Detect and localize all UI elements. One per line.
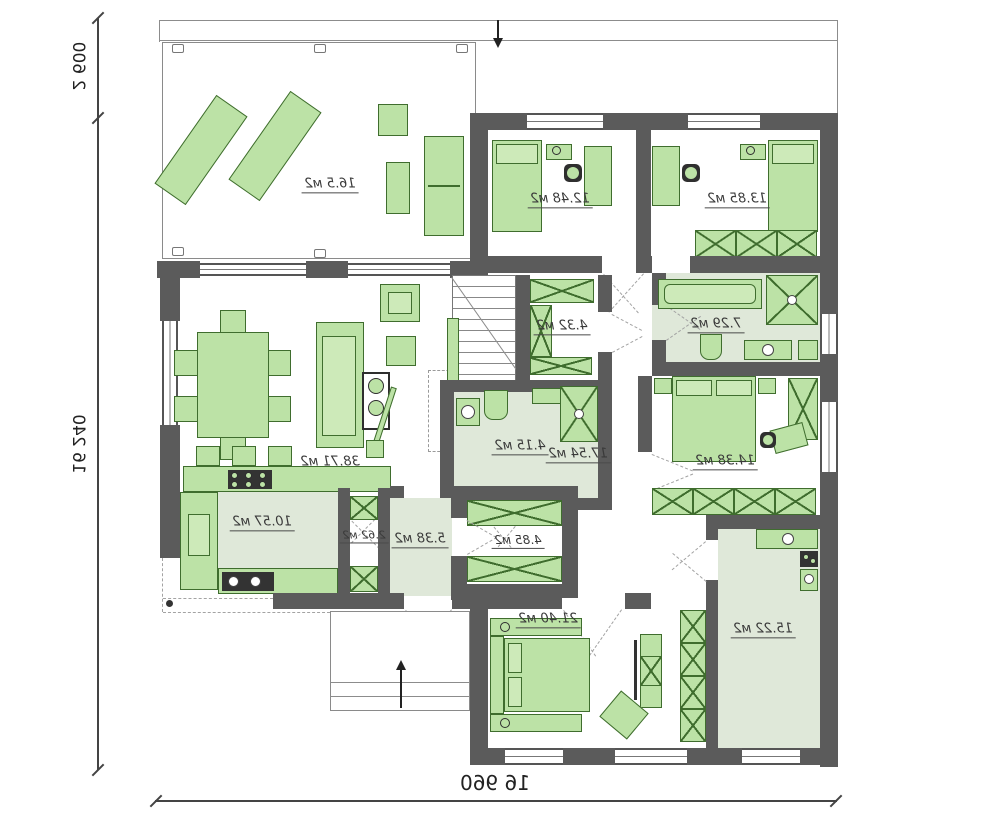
pillow bbox=[772, 144, 814, 164]
terrace-post bbox=[456, 44, 468, 53]
bar-stool bbox=[268, 446, 292, 466]
nightstand bbox=[758, 378, 776, 394]
floor-plan: 2 600 16 240 16 960 16.5 м2 12.48 м2 1 bbox=[0, 0, 1000, 822]
sink-basin bbox=[228, 576, 239, 587]
lamp bbox=[552, 146, 561, 155]
wardrobe-unit bbox=[734, 488, 775, 515]
stair-cabinet bbox=[447, 318, 459, 384]
room-label-kitchen: 10.57 м2 bbox=[229, 514, 294, 531]
wall bbox=[598, 275, 612, 312]
lamp bbox=[746, 146, 755, 155]
sofa-seat bbox=[322, 336, 356, 436]
door-swing bbox=[612, 314, 642, 331]
wall bbox=[160, 425, 180, 558]
dining-chair bbox=[266, 396, 291, 422]
wall bbox=[652, 362, 820, 376]
room-label-closet: 4.85 м2 bbox=[491, 533, 544, 549]
window bbox=[742, 748, 800, 765]
wardrobe-unit bbox=[467, 556, 562, 582]
burner bbox=[245, 481, 252, 488]
terrace-table bbox=[378, 104, 408, 136]
terrace-post bbox=[172, 44, 184, 53]
wall bbox=[638, 376, 652, 452]
burner bbox=[810, 558, 816, 564]
room-label-utility: 15.22 м2 bbox=[730, 621, 795, 638]
bed-headboard bbox=[490, 636, 504, 714]
room-label-pantry: 2.62 м2 bbox=[339, 528, 388, 543]
wall bbox=[470, 113, 838, 130]
window bbox=[505, 748, 563, 765]
dining-chair bbox=[174, 350, 199, 376]
nightstand bbox=[654, 378, 672, 394]
window bbox=[348, 263, 450, 276]
wardrobe-unit bbox=[467, 500, 562, 526]
burner bbox=[231, 481, 238, 488]
dimension-total-width: 16 960 bbox=[460, 771, 530, 795]
wall bbox=[470, 113, 488, 273]
burner bbox=[259, 481, 266, 488]
door-swing bbox=[612, 336, 642, 353]
room-label-hall: 5.38 м2 bbox=[391, 531, 448, 548]
room-label-master-bedroom: 21.40 м2 bbox=[515, 611, 580, 628]
floor-lamp-base bbox=[366, 440, 384, 458]
wall bbox=[160, 278, 180, 321]
room-label-child-bedroom-2: 13.85 м2 bbox=[704, 191, 769, 208]
wall bbox=[306, 261, 348, 278]
toilet bbox=[484, 390, 508, 420]
pillow bbox=[716, 380, 752, 396]
lamp bbox=[500, 622, 510, 632]
wall bbox=[690, 256, 838, 273]
burner bbox=[231, 472, 238, 479]
terrace-post bbox=[172, 247, 184, 256]
wardrobe-unit bbox=[652, 488, 693, 515]
wall bbox=[488, 256, 602, 273]
shower-drain bbox=[787, 295, 797, 305]
wardrobe-unit bbox=[680, 610, 706, 643]
desk-chair bbox=[682, 164, 700, 182]
wardrobe-unit bbox=[775, 488, 816, 515]
lamp bbox=[500, 718, 510, 728]
tv-screen bbox=[634, 640, 637, 700]
dimension-total-height: 16 240 bbox=[68, 414, 88, 473]
desk bbox=[652, 146, 680, 206]
dining-chair bbox=[266, 350, 291, 376]
slab-dashed-edge bbox=[163, 612, 330, 613]
wall bbox=[452, 593, 470, 609]
entry-arrow-icon bbox=[396, 660, 406, 670]
terrace-side-table bbox=[386, 162, 410, 214]
bar-stool bbox=[196, 446, 220, 466]
door-swing bbox=[608, 273, 644, 312]
window bbox=[200, 263, 306, 276]
wardrobe-unit bbox=[530, 279, 594, 303]
wall bbox=[706, 515, 820, 529]
dining-chair bbox=[220, 310, 246, 334]
roof-edge-right bbox=[837, 20, 838, 115]
wall bbox=[636, 256, 652, 273]
wall bbox=[598, 352, 612, 498]
cabinet bbox=[798, 340, 818, 360]
wall bbox=[451, 486, 578, 500]
terrace-post bbox=[314, 249, 326, 258]
room-label-bathroom-1: 7.29 м2 bbox=[687, 316, 744, 333]
room-label-child-bedroom-1: 12.48 м2 bbox=[527, 191, 592, 208]
room-label-bedroom: 14.38 м2 bbox=[692, 453, 757, 470]
dimension-line-left bbox=[97, 18, 99, 770]
pillow bbox=[676, 380, 712, 396]
wall bbox=[636, 130, 651, 258]
roof-arrow-line bbox=[497, 20, 499, 40]
dimension-line-bottom bbox=[155, 800, 837, 802]
speaker bbox=[368, 378, 384, 394]
window bbox=[820, 314, 838, 354]
wardrobe-unit bbox=[736, 230, 777, 258]
roof-line bbox=[160, 20, 838, 21]
toilet bbox=[700, 334, 722, 360]
slab-dashed-edge bbox=[163, 598, 273, 599]
door-swing bbox=[589, 609, 622, 655]
wall bbox=[273, 593, 400, 609]
shower-drain bbox=[574, 409, 584, 419]
wall bbox=[706, 515, 718, 540]
wardrobe-unit bbox=[777, 230, 817, 258]
wall bbox=[157, 261, 200, 278]
washer-door bbox=[461, 405, 475, 419]
shelf-unit bbox=[350, 496, 378, 520]
entry-arrow-line bbox=[400, 668, 402, 708]
pillow bbox=[496, 144, 538, 164]
room-label-terrace: 16.5 м2 bbox=[301, 176, 358, 193]
bar-counter bbox=[183, 466, 391, 492]
wardrobe-unit bbox=[680, 643, 706, 676]
room-label-hallway: 17.54 м2 bbox=[545, 446, 610, 463]
dining-table bbox=[197, 332, 269, 438]
sink bbox=[762, 344, 774, 356]
wall bbox=[488, 593, 562, 609]
pillow bbox=[508, 643, 522, 673]
burner bbox=[259, 472, 266, 479]
sink-basin bbox=[250, 576, 261, 587]
wardrobe-unit bbox=[680, 676, 706, 709]
burner bbox=[245, 472, 252, 479]
window bbox=[615, 748, 687, 765]
wardrobe-unit bbox=[530, 357, 592, 375]
wall bbox=[390, 593, 404, 609]
sink bbox=[782, 533, 794, 545]
dimension-terrace-depth: 2 600 bbox=[68, 42, 88, 91]
desk-chair bbox=[760, 432, 776, 448]
armchair-seat bbox=[388, 292, 412, 314]
wardrobe-unit bbox=[680, 709, 706, 742]
oven bbox=[188, 514, 210, 556]
terrace-sofa-cushion bbox=[428, 185, 460, 187]
slab-dashed-edge bbox=[162, 558, 163, 612]
tv-stand-shelf bbox=[640, 656, 662, 686]
burner bbox=[803, 554, 809, 560]
pillow bbox=[508, 677, 522, 707]
wall bbox=[470, 593, 488, 765]
roof-arrow-icon bbox=[493, 38, 503, 48]
desk-chair bbox=[564, 164, 582, 182]
window bbox=[527, 113, 603, 130]
wardrobe-unit bbox=[695, 230, 736, 258]
wall bbox=[562, 486, 578, 596]
wall bbox=[625, 593, 651, 609]
bathtub-basin bbox=[664, 284, 756, 304]
bar-stool bbox=[232, 446, 256, 466]
terrace-post bbox=[314, 44, 326, 53]
shelf-unit bbox=[350, 566, 378, 592]
window bbox=[820, 402, 838, 472]
wall bbox=[706, 580, 718, 748]
washbasin bbox=[532, 388, 562, 404]
window bbox=[688, 113, 760, 130]
door-swing bbox=[672, 553, 706, 582]
wardrobe-unit bbox=[693, 488, 734, 515]
wall bbox=[516, 275, 530, 388]
room-label-wardrobe: 4.32 м2 bbox=[533, 318, 590, 335]
dining-chair bbox=[174, 396, 199, 422]
appliance-door bbox=[804, 574, 814, 584]
side-table bbox=[386, 336, 416, 366]
room-label-bathroom-2: 4.15 м2 bbox=[491, 438, 548, 455]
roof-edge-left bbox=[159, 20, 160, 42]
wall bbox=[451, 486, 467, 518]
wall bbox=[390, 486, 404, 498]
slab-corner-marker bbox=[166, 600, 173, 607]
